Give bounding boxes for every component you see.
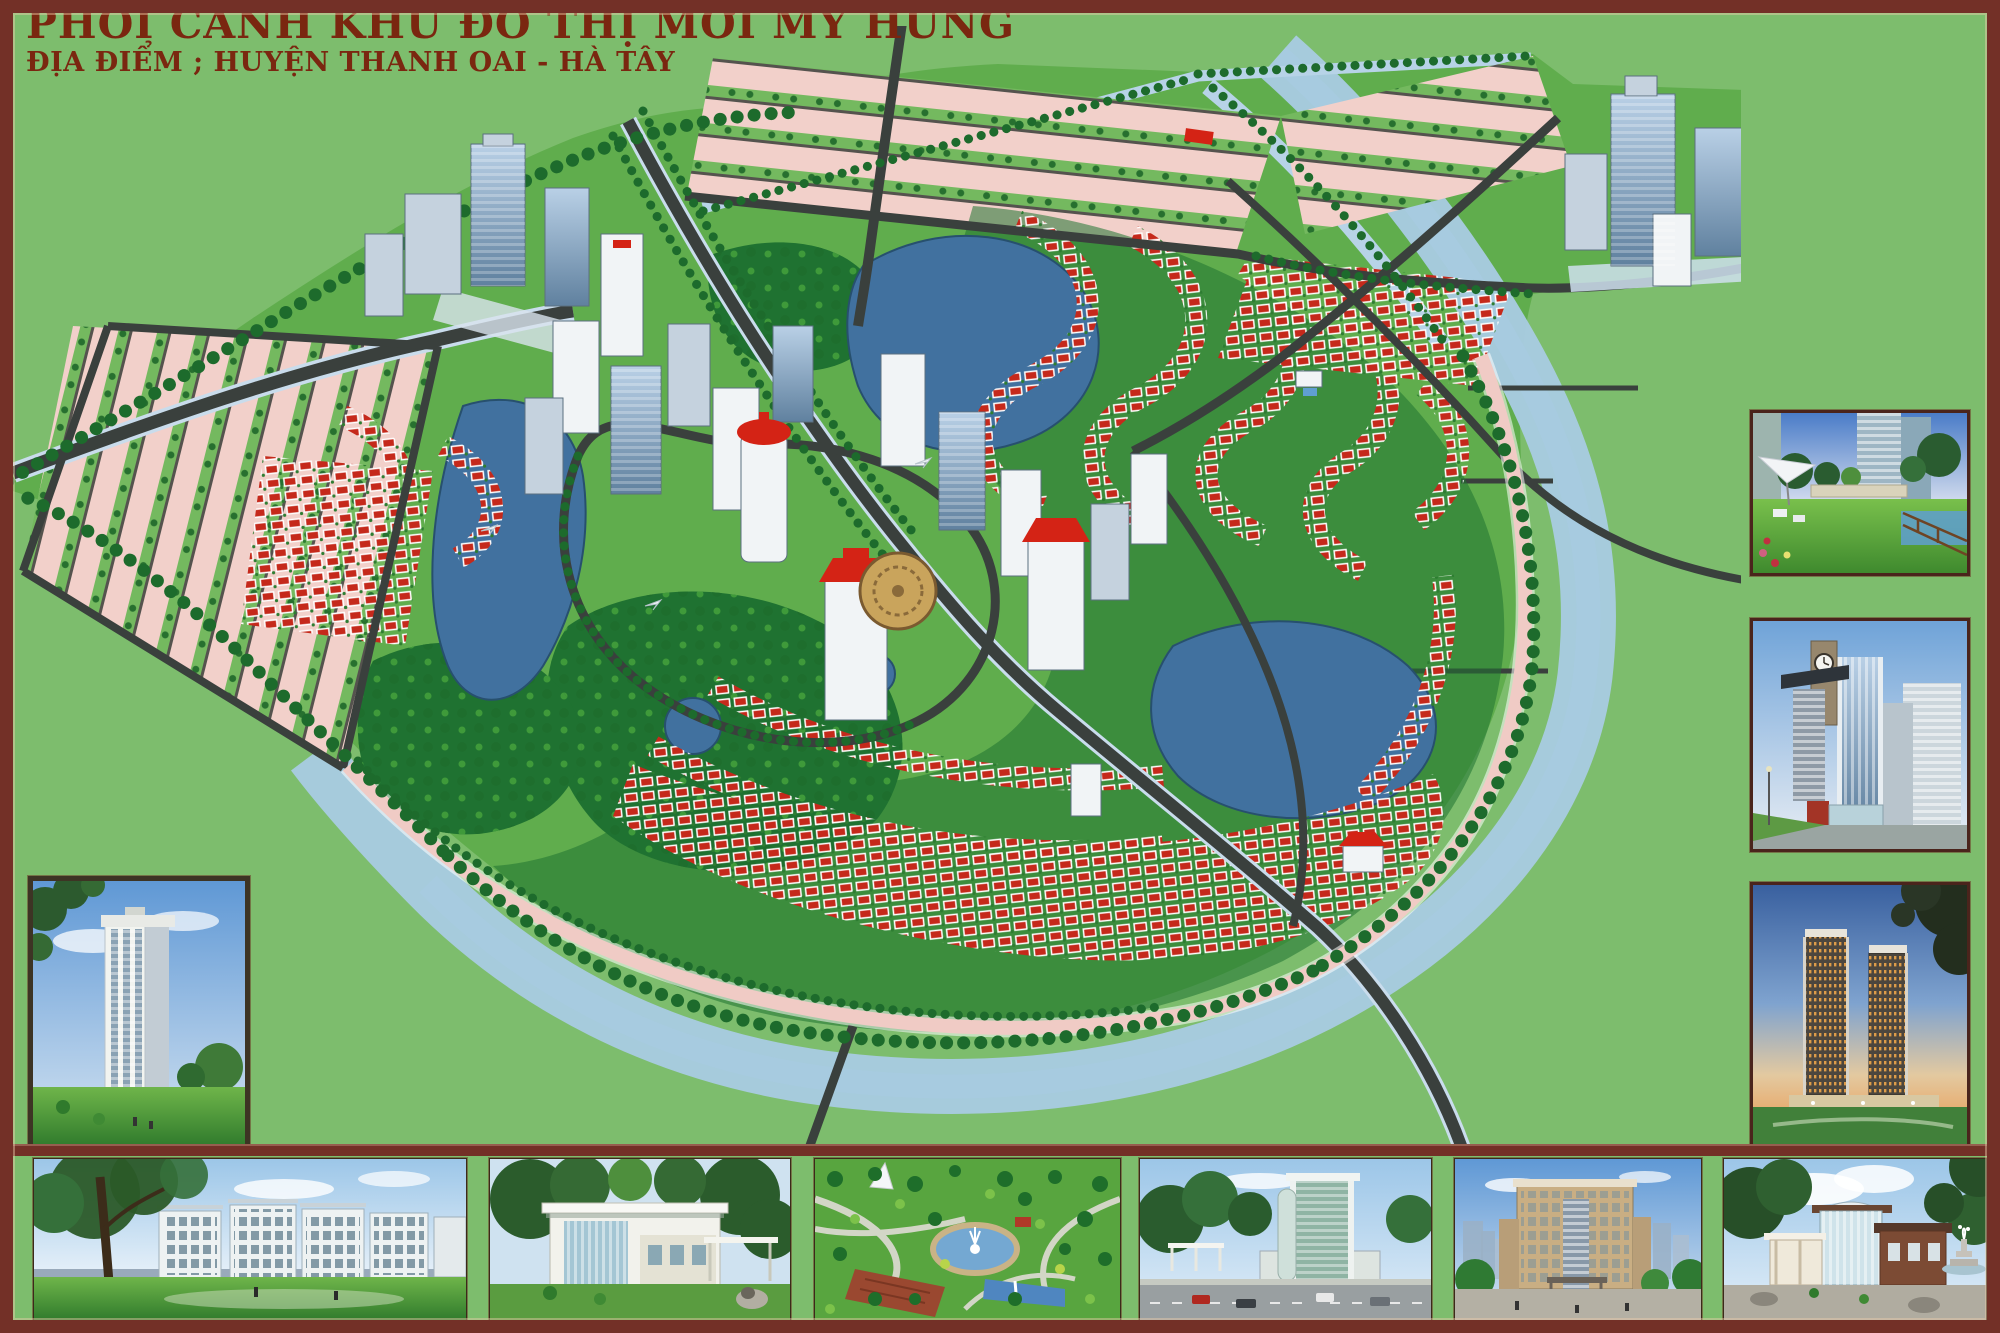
apartment-complex-scene (34, 1159, 466, 1321)
park-aerial-scene (815, 1159, 1120, 1321)
apartment-tower-scene (33, 881, 245, 1147)
inset-twin-towers-dusk (1750, 882, 1970, 1152)
header: PHỐI CẢNH KHU ĐÔ THỊ MỚI MỸ HƯNG ĐỊA ĐIỂ… (26, 2, 1015, 78)
inset-hotel-midrise (1454, 1158, 1702, 1322)
inset-office-building (1139, 1158, 1432, 1322)
bottom-strip-divider (0, 1144, 2000, 1156)
office-street-scene (1140, 1159, 1431, 1321)
twin-towers-scene (1753, 885, 1967, 1149)
inset-clubhouse (1723, 1158, 1987, 1322)
inset-park-landscape (814, 1158, 1121, 1322)
clubhouse-scene (1724, 1159, 1986, 1321)
villa-scene (490, 1159, 790, 1321)
inset-modern-villa (489, 1158, 791, 1322)
poster-title: PHỐI CẢNH KHU ĐÔ THỊ MỚI MỸ HƯNG (26, 2, 1015, 47)
inset-clock-tower-building (1750, 618, 1970, 852)
clock-tower-scene (1753, 621, 1967, 849)
hotel-scene (1455, 1159, 1701, 1321)
poster-subtitle: ĐỊA ĐIỂM ; HUYỆN THANH OAI - HÀ TÂY (26, 47, 1015, 78)
inset-apartment-complex (33, 1158, 467, 1322)
garden-courtyard-scene (1753, 413, 1967, 573)
inset-garden-courtyard (1750, 410, 1970, 576)
masterplan-rendering (13, 26, 1741, 1146)
inset-apartment-tower (28, 876, 250, 1152)
